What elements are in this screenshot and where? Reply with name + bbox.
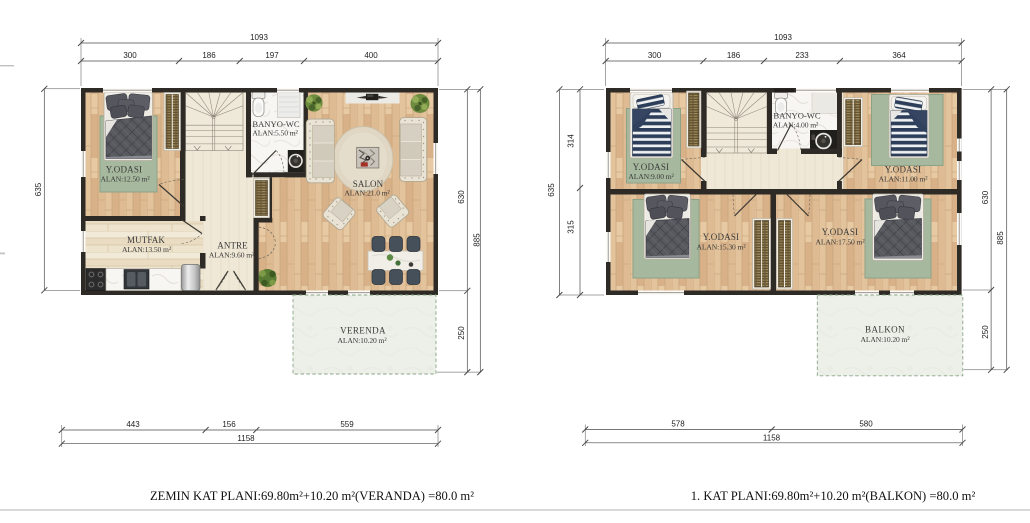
svg-text:ANTRE: ANTRE [217,241,248,251]
svg-text:300: 300 [648,51,662,60]
svg-text:ALAN:9.00 m²: ALAN:9.00 m² [628,172,674,181]
svg-text:156: 156 [222,420,236,429]
svg-text:1158: 1158 [763,433,781,442]
svg-text:364: 364 [892,51,906,60]
svg-text:1093: 1093 [250,33,268,42]
svg-text:443: 443 [126,420,140,429]
svg-text:630: 630 [457,190,466,204]
svg-text:ALAN:11.00 m²: ALAN:11.00 m² [879,175,929,184]
svg-text:1158: 1158 [237,434,255,443]
svg-text:ALAN:17.50 m²: ALAN:17.50 m² [815,238,865,247]
svg-text:MUTFAK: MUTFAK [127,235,165,245]
svg-text:630: 630 [981,190,990,204]
svg-text:SALON: SALON [353,179,384,189]
svg-text:BANYO-WC: BANYO-WC [773,111,821,121]
svg-text:Y.ODASI: Y.ODASI [822,227,859,237]
svg-text:197: 197 [265,51,279,60]
svg-text:635: 635 [34,182,43,196]
svg-text:250: 250 [457,326,466,340]
svg-text:186: 186 [727,51,741,60]
svg-text:233: 233 [795,51,809,60]
svg-text:BANYO-WC: BANYO-WC [252,119,300,129]
svg-text:580: 580 [859,420,873,429]
svg-text:300: 300 [123,51,137,60]
svg-text:Y.ODASI: Y.ODASI [703,232,740,242]
svg-text:ALAN:9.60 m²: ALAN:9.60 m² [209,251,255,260]
svg-text:ALAN:15.30 m²: ALAN:15.30 m² [696,243,746,252]
svg-text:ALAN:21.0 m²: ALAN:21.0 m² [344,189,390,198]
svg-text:186: 186 [202,51,216,60]
svg-text:ALAN:10.20 m²: ALAN:10.20 m² [860,335,910,344]
svg-text:Y.ODASI: Y.ODASI [106,165,143,175]
svg-text:315: 315 [567,220,576,234]
svg-text:400: 400 [364,51,378,60]
svg-text:250: 250 [981,325,990,339]
svg-text:1. KAT PLANI:69.80m²+10.20 m²(: 1. KAT PLANI:69.80m²+10.20 m²(BALKON) =8… [691,489,976,503]
svg-text:559: 559 [340,420,354,429]
svg-text:578: 578 [671,420,685,429]
svg-text:ALAN:12.50 m²: ALAN:12.50 m² [100,175,150,184]
svg-text:Y.ODASI: Y.ODASI [885,165,922,175]
svg-text:1093: 1093 [774,33,792,42]
svg-text:ALAN:13.50 m²: ALAN:13.50 m² [122,245,172,254]
svg-text:885: 885 [996,231,1005,245]
svg-text:Y.ODASI: Y.ODASI [633,162,670,172]
svg-text:ALAN:10.20 m²: ALAN:10.20 m² [337,336,387,345]
svg-text:885: 885 [473,233,482,247]
svg-text:314: 314 [567,134,576,148]
svg-text:VERENDA: VERENDA [340,326,386,336]
svg-text:ALAN:5.50 m²: ALAN:5.50 m² [252,129,298,138]
svg-text:ZEMIN KAT PLANI:69.80m²+10.20: ZEMIN KAT PLANI:69.80m²+10.20 m²(VERANDA… [150,489,474,503]
svg-text:BALKON: BALKON [865,325,905,335]
svg-text:ALAN:4.00 m²: ALAN:4.00 m² [773,121,819,130]
svg-text:635: 635 [547,183,556,197]
